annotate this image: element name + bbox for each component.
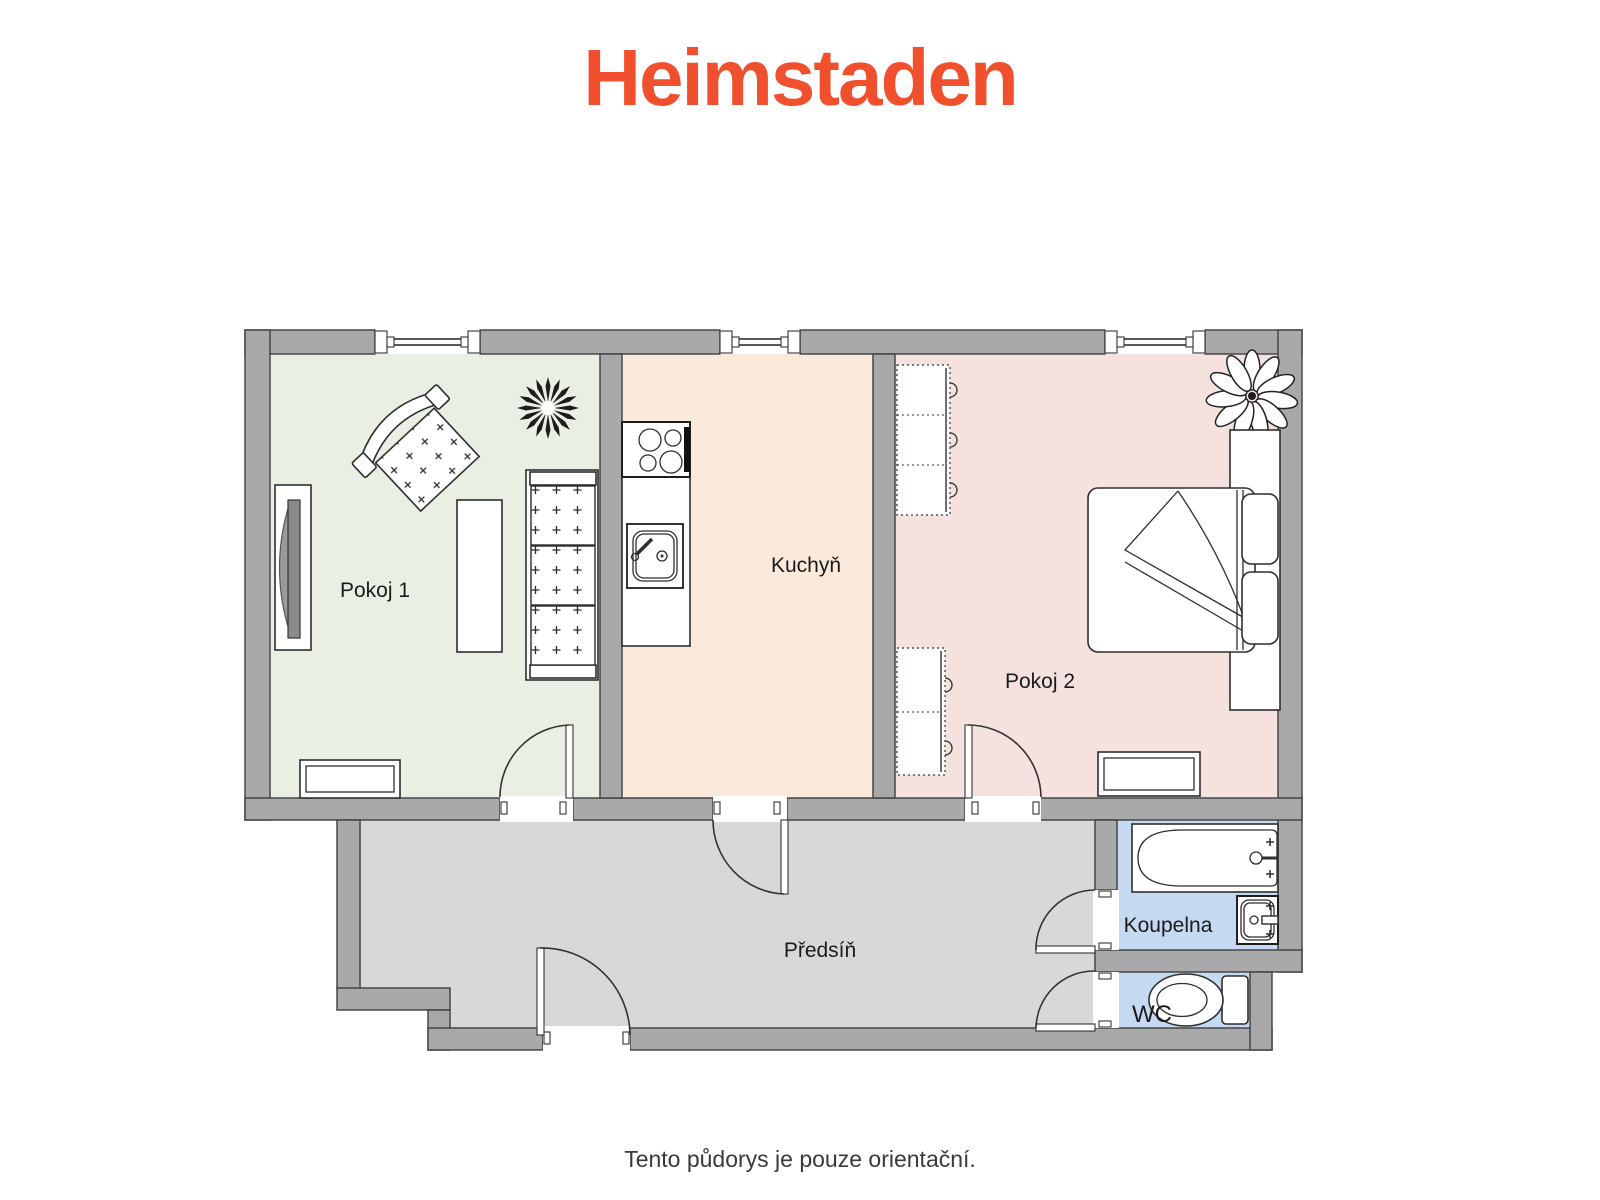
tv-unit-icon — [275, 485, 311, 650]
label-kuchyn: Kuchyň — [771, 554, 841, 577]
radiator-pokoj2-icon — [1098, 752, 1200, 796]
label-predsin: Předsíň — [784, 939, 856, 962]
label-pokoj2: Pokoj 2 — [1005, 670, 1075, 693]
kitchen-sink-icon — [627, 524, 683, 588]
window-kuchyn — [720, 330, 800, 354]
plant-icon — [517, 377, 579, 439]
table-icon — [457, 500, 502, 652]
wardrobe-top-icon — [897, 365, 957, 515]
wardrobe-bottom-icon — [897, 648, 952, 775]
disclaimer-caption: Tento půdorys je pouze orientační. — [0, 1146, 1600, 1173]
bed-icon — [1088, 488, 1255, 652]
bathtub-icon — [1132, 824, 1278, 892]
stove-icon — [622, 422, 690, 477]
washbasin-icon — [1237, 896, 1278, 944]
floor-predsin — [360, 820, 1095, 1028]
window-pokoj2 — [1105, 330, 1205, 354]
sofa-icon — [526, 470, 598, 680]
label-koupelna: Koupelna — [1124, 914, 1213, 937]
label-pokoj1: Pokoj 1 — [340, 579, 410, 602]
radiator-pokoj1-icon — [300, 760, 400, 798]
page: Heimstaden — [0, 0, 1600, 1200]
floor-plan: Pokoj 1 Kuchyň Pokoj 2 Předsíň Koupelna … — [0, 0, 1600, 1200]
label-wc: WC — [1132, 1001, 1172, 1028]
window-pokoj1 — [375, 330, 480, 354]
